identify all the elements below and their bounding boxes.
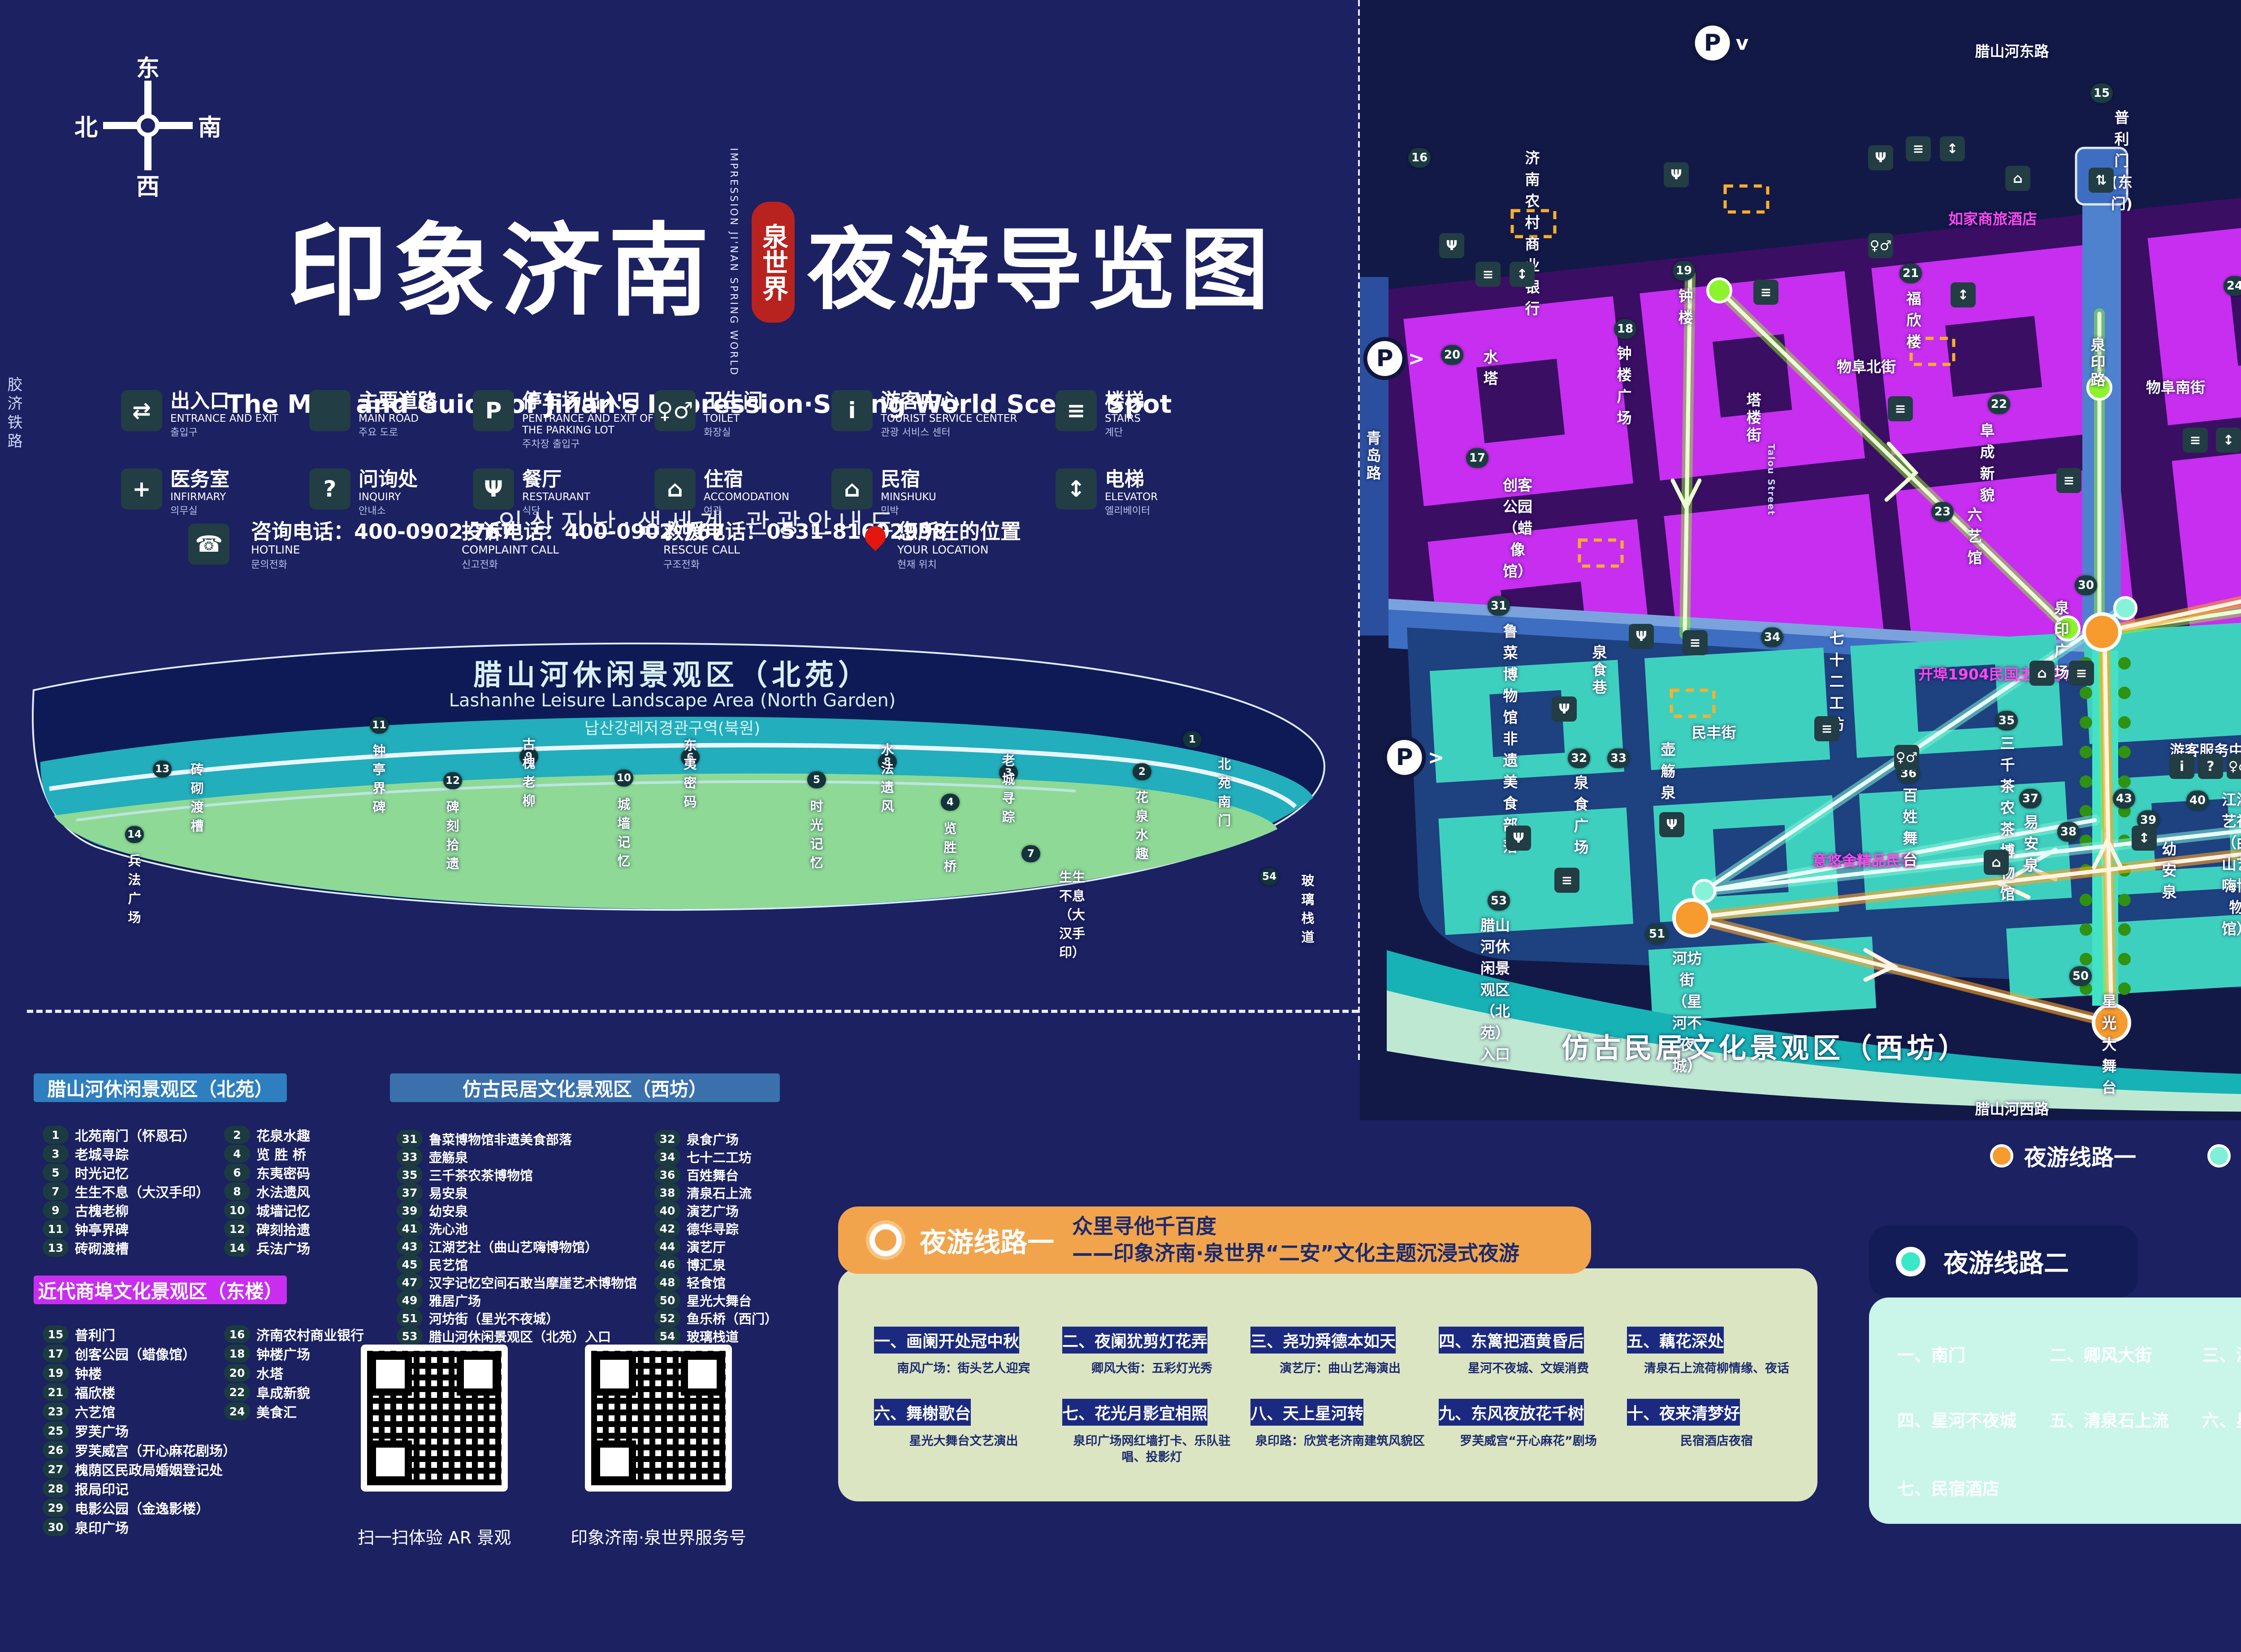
your-location: 您所在的位置 YOUR LOCATION 현재 위치 — [865, 520, 1021, 571]
legend-icon: ? — [309, 468, 350, 510]
list-item: 32泉食广场 — [654, 1129, 739, 1148]
facility-icon: Ψ — [1552, 696, 1577, 722]
list-item: 1北苑南门（怀恩石） — [43, 1125, 196, 1145]
legend-icon: ♀♂ — [654, 390, 696, 431]
qr-caption-ar: 扫一扫体验 AR 景观 — [358, 1524, 511, 1548]
list-item: 2花泉水趣 — [224, 1125, 310, 1145]
route1-name: 夜游线路一 — [920, 1221, 1054, 1260]
legend-label-kr: 화장실 — [704, 424, 763, 439]
railway-label: 胶济铁路 — [3, 376, 25, 452]
facility-icon: ⌂ — [2005, 166, 2030, 191]
legend-icon: ↕ — [1056, 468, 1097, 510]
legend-label-cn: 楼梯 — [1105, 390, 1144, 413]
legend-label-kr: 엘리베이터 — [1105, 503, 1158, 517]
scenic-map-labels: 腊山河东路物阜北街物阜南街物阜南街民丰街民丰西街河坊街腊山河西路塔楼街Talou… — [1360, 0, 2241, 1120]
legend-label-cn: 出入口 — [170, 390, 278, 413]
route2-banner: 夜游线路二 — [1869, 1225, 2138, 1297]
legend-label-cn: 主要道路 — [359, 390, 437, 413]
hotline-label-en: COMPLAINT CALL — [462, 544, 610, 557]
route-dot — [2207, 1144, 2231, 1168]
title-side-en: IMPRESSION JI'NAN SPRING WORLD — [728, 148, 739, 376]
facility-icon: ≡ — [1554, 868, 1579, 893]
list-item: 22阜成新貌 — [224, 1382, 310, 1402]
compass-north: 北 — [74, 109, 98, 143]
legend-item: ⌂ 住宿 ACCOMODATION 여관 — [654, 468, 789, 517]
list-item: 23六艺馆 — [43, 1401, 115, 1421]
legend-icon: ⇄ — [121, 390, 162, 431]
legend-label-kr: 관광 서비스 센터 — [881, 424, 1017, 439]
list-item: 46博汇泉 — [654, 1255, 726, 1274]
list-item: 51河坊街（星光不夜城） — [397, 1309, 559, 1328]
legend-label-cn: 游客中心 — [881, 390, 1017, 413]
list-item: 36百姓舞台 — [654, 1165, 739, 1184]
title-block: 印象济南 IMPRESSION JI'NAN SPRING WORLD 泉世界 … — [287, 148, 1138, 376]
list-item: 49雅居广场 — [397, 1291, 481, 1310]
legend-label-en: INFIRMARY — [170, 491, 229, 503]
parking-marker: Pv — [1691, 22, 1749, 65]
legend-icon — [309, 390, 350, 431]
facility-icon: ↕ — [1510, 262, 1535, 287]
facility-icon: Ψ — [1439, 233, 1464, 258]
facility-icon: Ψ — [1629, 624, 1654, 649]
legend-label-kr: 식당 — [522, 503, 590, 517]
list-item: 27槐荫区民政局婚姻登记处 — [43, 1459, 223, 1479]
legend-label-cn: 餐厅 — [522, 468, 590, 491]
list-item: 7生生不息（大汉手印） — [43, 1181, 209, 1201]
list-item: 28报局印记 — [43, 1479, 129, 1498]
night-tour-guide-poster: 东 北 南 西 印象济南 IMPRESSION JI'NAN SPRING WO… — [0, 0, 2241, 1652]
hotline-label-en: RESCUE CALL — [663, 544, 811, 557]
legend-label-cn: 医务室 — [170, 468, 229, 491]
facility-icon: Ψ — [1868, 145, 1893, 170]
list-item: 35三千茶农茶博物馆 — [397, 1165, 533, 1184]
facility-icon: ≡ — [2069, 661, 2094, 686]
list-item: 20水塔 — [224, 1363, 283, 1383]
list-item: 6东夷密码 — [224, 1163, 310, 1182]
map-label: 民丰街 — [1692, 721, 1736, 742]
legend-label-kr: 민박 — [881, 503, 936, 517]
facility-icon: ↕ — [2132, 826, 2157, 851]
route1-panel-bg — [838, 1268, 1817, 1501]
facility-icon: ≡ — [1888, 396, 1913, 421]
legend-icon: ⌂ — [831, 468, 873, 510]
legend-item: ⇄ 出入口 ENTRANCE AND EXIT 출입구 — [121, 390, 278, 439]
list-item: 41洗心池 — [397, 1219, 468, 1238]
map-label: 如家商旅酒店 — [1948, 207, 2037, 229]
legend-label-en: RESTAURANT — [522, 491, 590, 503]
list-item: 15普利门 — [43, 1324, 115, 1344]
location-pin-icon — [861, 522, 890, 551]
legend-label-en: ENTRANCE AND EXIT — [170, 413, 278, 424]
facility-icon: ↕ — [1951, 282, 1976, 307]
facility-icon: ⌂ — [2029, 661, 2055, 686]
facility-icon: ≡ — [1814, 716, 1839, 741]
facility-icon: ⌂ — [1984, 850, 2009, 875]
list-item: 45民艺馆 — [397, 1255, 468, 1274]
facility-icon: ≡ — [1753, 280, 1778, 305]
map-label: 腊山河东路 — [1975, 39, 2049, 61]
list-header-north: 腊山河休闲景观区（北苑） — [34, 1073, 287, 1102]
facility-icon: ♀♂ — [2227, 754, 2241, 779]
legend-label-cn: 问询处 — [359, 468, 418, 491]
legend-label-en: TOILET — [704, 413, 763, 424]
list-item: 52鱼乐桥（西门） — [654, 1309, 778, 1328]
legend-item: ? 问询处 INQUIRY 안내소 — [309, 468, 418, 517]
list-item: 48轻食馆 — [654, 1273, 726, 1292]
map-label: 青岛路 — [1362, 430, 1383, 483]
list-item: 18钟楼广场 — [224, 1344, 310, 1363]
route2-ring-icon — [1896, 1247, 1925, 1276]
compass: 东 北 南 西 — [76, 54, 220, 197]
title-seal: 泉世界 — [752, 202, 795, 323]
list-item: 25罗芙广场 — [43, 1421, 129, 1440]
legend-label-kr: 출입구 — [170, 424, 278, 439]
list-header-west: 仿古民居文化景观区（西坊） — [390, 1073, 780, 1102]
legend-item: i 游客中心 TOURIST SERVICE CENTER 관광 서비스 센터 — [831, 390, 1017, 439]
facility-icon: ? — [2198, 754, 2223, 779]
legend-label-en: TOURIST SERVICE CENTER — [881, 413, 1017, 424]
legend-icon: ⌂ — [654, 468, 696, 510]
legend-label-kr: 주요 도로 — [359, 424, 437, 439]
facility-icon: ⇅ — [2089, 168, 2114, 193]
list-item: 21福欣楼 — [43, 1382, 115, 1402]
list-item: 4览 胜 桥 — [224, 1144, 306, 1163]
phone-icon: ☎ — [188, 523, 229, 565]
list-item: 12碑刻拾遗 — [224, 1219, 310, 1239]
legend-icon: + — [121, 468, 162, 510]
legend-label-kr: 계단 — [1105, 424, 1144, 439]
facility-icon: ♀♂ — [1894, 745, 1919, 770]
list-item: 10城墙记忆 — [224, 1200, 310, 1220]
list-item: 5时光记忆 — [43, 1163, 129, 1182]
parking-marker: P> — [1383, 736, 1445, 779]
legend-label-cn: 卫生间 — [704, 390, 763, 413]
map-label: 泉印路 — [2086, 337, 2107, 389]
hotline-label-en: HOTLINE — [251, 544, 399, 557]
legend-item: ↕ 电梯 ELEVATOR 엘리베이터 — [1056, 468, 1158, 517]
legend-label-kr: 의무실 — [170, 503, 229, 517]
list-item: 54玻璃栈道 — [654, 1327, 739, 1345]
map-label: 腊山河西路 — [1975, 1097, 2049, 1119]
route1-ring-icon — [870, 1224, 902, 1256]
facility-icon: ↕ — [1940, 136, 1965, 161]
route-legend-item: 夜游线路二 — [2207, 1140, 2241, 1172]
legend-label-kr: 주차장 출입구 — [522, 436, 670, 450]
north-garden-title-en: Lashanhe Leisure Landscape Area (North G… — [449, 690, 896, 711]
route1-banner: 夜游线路一 众里寻他千百度 ——印象济南·泉世界“二安”文化主题沉浸式夜游 — [838, 1207, 1591, 1274]
list-item: 53腊山河休闲景观区（北苑）入口 — [397, 1327, 611, 1345]
qr-caption-service: 印象济南·泉世界服务号 — [571, 1524, 746, 1548]
route1-subtitle1: 众里寻他千百度 — [1072, 1213, 1519, 1240]
facility-icon: ≡ — [1475, 262, 1501, 287]
list-item: 50星光大舞台 — [654, 1291, 752, 1310]
legend-icon: ≡ — [1056, 390, 1097, 431]
map-label: 仿古民居文化景观区（西坊） — [1562, 1025, 1969, 1066]
qr-code-ar — [361, 1345, 508, 1492]
list-item: 24美食汇 — [224, 1401, 297, 1421]
list-item: 33壶觞泉 — [397, 1147, 468, 1166]
list-item: 17创客公园（蜡像馆） — [43, 1344, 196, 1363]
map-label: 塔楼街 — [1742, 392, 1763, 445]
legend-item: ♀♂ 卫生间 TOILET 화장실 — [654, 390, 763, 439]
legend-label-cn: 住宿 — [704, 468, 789, 491]
list-item: 19钟楼 — [43, 1363, 102, 1383]
legend-item: ≡ 楼梯 STAIRS 계단 — [1056, 390, 1144, 439]
compass-east: 东 — [136, 50, 160, 83]
route-legend-item: 夜游线路一 — [1990, 1140, 2136, 1172]
list-item: 31鲁菜博物馆非遗美食部落 — [397, 1129, 572, 1148]
list-item: 16济南农村商业银行 — [224, 1324, 364, 1344]
route-dot — [1990, 1144, 2013, 1168]
facility-icon: ♀♂ — [1868, 233, 1893, 258]
legend-label-en: ACCOMODATION — [704, 491, 789, 503]
map-label: 物阜北街 — [1837, 355, 1896, 376]
map-label: 泉食巷 — [1588, 644, 1609, 697]
divider-horizontal — [27, 1010, 1358, 1013]
facility-icon: ≡ — [2183, 428, 2208, 453]
list-item: 38清泉石上流 — [654, 1183, 752, 1202]
route1-subtitle2: ——印象济南·泉世界“二安”文化主题沉浸式夜游 — [1072, 1240, 1519, 1267]
parking-marker: P> — [1363, 337, 1425, 380]
list-item: 3老城寻踪 — [43, 1144, 129, 1163]
legend-label-cn: 电梯 — [1105, 468, 1158, 491]
facility-icon: ≡ — [2056, 468, 2081, 493]
legend-label-kr: 안내소 — [359, 503, 418, 517]
page-title: 夜游导览图 — [807, 198, 1273, 327]
list-item: 34七十二工坊 — [654, 1147, 752, 1166]
facility-icon: ≡ — [1906, 136, 1931, 161]
legend-label-en: INQUIRY — [359, 491, 418, 503]
qr-code-service — [585, 1345, 732, 1492]
facility-icon: Ψ — [1506, 826, 1531, 851]
map-label: Talou Street — [1766, 444, 1777, 516]
north-garden-title: 腊山河休闲景观区（北苑） — [473, 652, 871, 693]
legend-label-cn: 停车场出入口 — [522, 390, 670, 413]
list-item: 44演艺厅 — [654, 1237, 726, 1256]
list-item: 29电影公园（金逸影楼） — [43, 1498, 209, 1518]
list-item: 30泉印广场 — [43, 1517, 129, 1537]
legend-label-en: PENTRANCE AND EXIT OF THE PARKING LOT — [522, 413, 670, 437]
list-header-east: 近代商埠文化景观区（东楼） — [34, 1276, 287, 1304]
legend-label-cn: 民宿 — [881, 468, 936, 491]
legend-item: 主要道路 MAIN ROAD 주요 도로 — [309, 390, 437, 439]
list-item: 13砖砌渡槽 — [43, 1238, 129, 1258]
legend-label-en: STAIRS — [1105, 413, 1144, 424]
list-item: 43江湖艺社（曲山艺嗨博物馆） — [397, 1237, 598, 1256]
legend-item: P 停车场出入口 PENTRANCE AND EXIT OF THE PARKI… — [473, 390, 670, 450]
list-item: 47汉字记忆空间石敢当摩崖艺术博物馆 — [397, 1273, 637, 1292]
compass-west: 西 — [136, 168, 160, 202]
map-label: 物阜南街 — [2146, 376, 2205, 397]
list-item: 8水法遗风 — [224, 1181, 310, 1201]
legend-icon: P — [473, 390, 514, 431]
legend-label-kr: 여관 — [704, 503, 789, 517]
list-item: 11钟亭界碑 — [43, 1219, 129, 1239]
facility-icon: ≡ — [1683, 630, 1708, 655]
facility-icon: Ψ — [1664, 162, 1689, 187]
list-item: 14兵法广场 — [224, 1238, 310, 1258]
list-item: 42德华寻踪 — [654, 1219, 739, 1238]
list-item: 9古槐老柳 — [43, 1200, 129, 1220]
facility-icon: i — [2169, 754, 2194, 779]
legend-label-en: ELEVATOR — [1105, 491, 1158, 503]
legend-item: Ψ 餐厅 RESTAURANT 식당 — [473, 468, 590, 517]
list-item: 37易安泉 — [397, 1183, 468, 1202]
facility-icon: Ψ — [1659, 812, 1684, 837]
list-item: 40演艺广场 — [654, 1201, 739, 1220]
legend-icon: Ψ — [473, 468, 514, 510]
legend-item: + 医务室 INFIRMARY 의무실 — [121, 468, 229, 517]
legend-label-en: MINSHUKU — [881, 491, 936, 503]
compass-south: 南 — [198, 109, 221, 143]
list-item: 26罗芙威宫（开心麻花剧场） — [43, 1440, 236, 1460]
route2-name: 夜游线路二 — [1943, 1243, 2069, 1280]
facility-icon: ↕ — [2216, 428, 2241, 453]
map-label: 意悠舍精品民宿 — [1813, 849, 1916, 870]
legend-item: ⌂ 民宿 MINSHUKU 민박 — [831, 468, 936, 517]
list-item: 39幼安泉 — [397, 1201, 468, 1220]
legend-icon: i — [831, 390, 873, 431]
legend-label-en: MAIN ROAD — [359, 413, 437, 424]
north-garden-title-kr: 납산강레저경관구역(북원) — [584, 715, 760, 739]
title-calligraphy: 印象济南 — [287, 189, 715, 335]
